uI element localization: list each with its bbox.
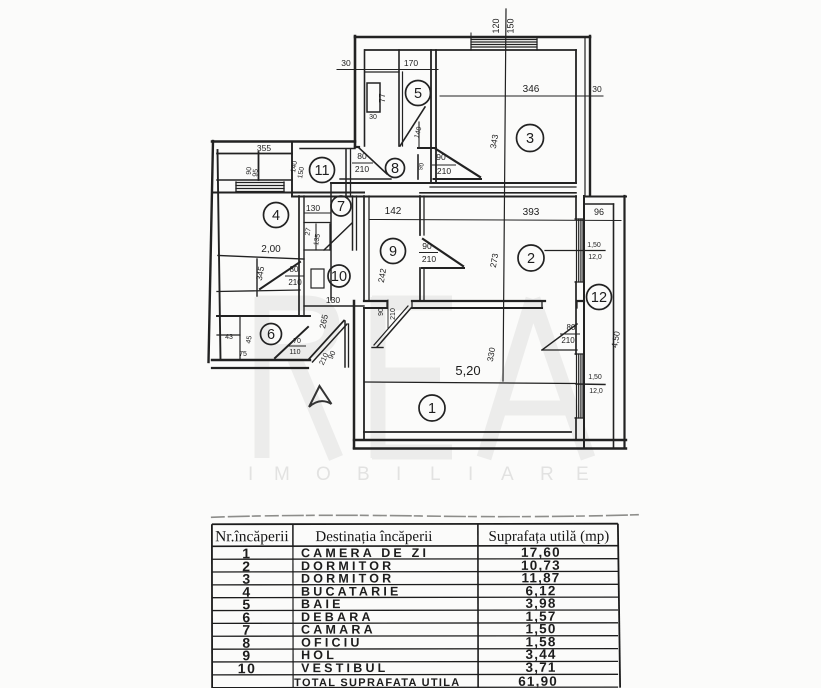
svg-text:30: 30	[369, 114, 377, 121]
svg-text:8: 8	[391, 161, 399, 177]
svg-text:95: 95	[252, 169, 260, 177]
svg-text:5: 5	[414, 86, 422, 102]
svg-text:Destinația încăperii: Destinația încăperii	[315, 529, 432, 545]
svg-text:30: 30	[592, 84, 602, 94]
svg-text:77: 77	[377, 93, 387, 103]
svg-text:120: 120	[491, 18, 501, 33]
svg-text:43: 43	[225, 334, 233, 341]
svg-text:75: 75	[239, 351, 247, 358]
svg-text:BAIE: BAIE	[301, 597, 344, 611]
svg-text:170: 170	[404, 58, 418, 68]
svg-text:90: 90	[436, 152, 446, 162]
svg-text:27: 27	[304, 227, 312, 236]
svg-text:142: 142	[385, 206, 402, 217]
svg-text:12: 12	[591, 290, 607, 306]
svg-text:R: R	[540, 464, 554, 485]
svg-text:210: 210	[437, 166, 451, 176]
svg-text:80: 80	[357, 151, 367, 161]
svg-text:CAMERA DE ZI: CAMERA DE ZI	[301, 546, 429, 560]
svg-text:1,50: 1,50	[587, 242, 601, 249]
svg-text:10: 10	[238, 660, 257, 676]
svg-text:90: 90	[422, 241, 432, 251]
svg-text:61,90: 61,90	[518, 674, 558, 688]
svg-text:2,00: 2,00	[261, 244, 281, 255]
svg-text:3,71: 3,71	[526, 660, 557, 675]
svg-text:4: 4	[272, 208, 280, 224]
svg-text:80: 80	[567, 323, 576, 332]
svg-text:80: 80	[290, 265, 299, 274]
svg-text:L: L	[430, 464, 441, 485]
svg-text:12,0: 12,0	[588, 254, 602, 261]
svg-text:12,0: 12,0	[589, 388, 603, 395]
svg-text:O: O	[316, 464, 331, 485]
svg-text:96: 96	[594, 207, 604, 217]
svg-text:A: A	[501, 464, 514, 485]
svg-text:210: 210	[561, 336, 575, 345]
svg-text:5,20: 5,20	[455, 363, 480, 378]
svg-text:6: 6	[267, 327, 275, 343]
svg-text:1: 1	[428, 401, 436, 417]
svg-text:10: 10	[331, 269, 347, 285]
svg-text:346: 346	[523, 84, 540, 95]
svg-text:Suprafața utilă (mp): Suprafața utilă (mp)	[489, 529, 610, 545]
svg-text:210: 210	[288, 278, 302, 287]
svg-text:B: B	[357, 464, 370, 485]
svg-text:E: E	[576, 464, 589, 485]
svg-text:2: 2	[527, 251, 535, 267]
svg-text:VESTIBUL: VESTIBUL	[301, 661, 388, 675]
svg-text:I: I	[468, 464, 473, 485]
svg-text:Nr.încăperii: Nr.încăperii	[215, 528, 289, 545]
svg-text:110: 110	[289, 349, 300, 356]
svg-text:11: 11	[314, 163, 329, 179]
svg-text:150: 150	[506, 18, 516, 33]
svg-text:1,50: 1,50	[588, 374, 602, 381]
svg-text:3: 3	[526, 131, 534, 147]
svg-text:90: 90	[378, 308, 385, 316]
svg-text:HOL: HOL	[301, 648, 337, 662]
svg-text:TOTAL SUPRAFATA UTILA: TOTAL SUPRAFATA UTILA	[294, 677, 460, 688]
svg-text:30: 30	[341, 58, 351, 68]
svg-text:70: 70	[293, 338, 301, 345]
svg-text:210: 210	[390, 308, 397, 320]
svg-text:9: 9	[389, 244, 397, 260]
svg-text:CAMARA: CAMARA	[301, 623, 376, 637]
svg-text:393: 393	[523, 207, 540, 218]
svg-text:355: 355	[257, 143, 271, 153]
svg-text:45: 45	[245, 335, 253, 344]
svg-text:7: 7	[337, 199, 345, 215]
svg-text:130: 130	[326, 295, 340, 305]
svg-text:DORMITOR: DORMITOR	[301, 572, 394, 586]
svg-text:210: 210	[355, 164, 369, 174]
svg-text:210: 210	[422, 254, 436, 264]
svg-text:I: I	[396, 464, 401, 485]
svg-text:M: M	[274, 464, 290, 485]
svg-text:130: 130	[306, 203, 320, 213]
svg-text:I: I	[248, 464, 253, 485]
